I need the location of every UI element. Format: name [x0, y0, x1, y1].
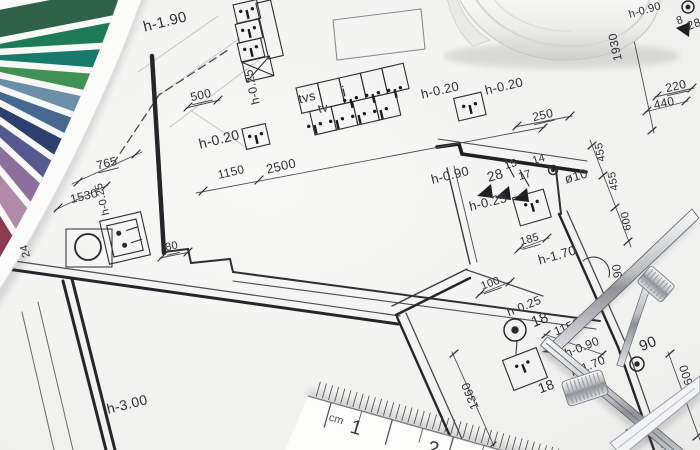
blueprint-photo: cm 1 2 h-1.90500h-0.25h-0.20tvstvih-0.20…	[0, 0, 700, 450]
compass-leg-upper	[542, 209, 699, 354]
drawing-compass	[0, 0, 700, 450]
